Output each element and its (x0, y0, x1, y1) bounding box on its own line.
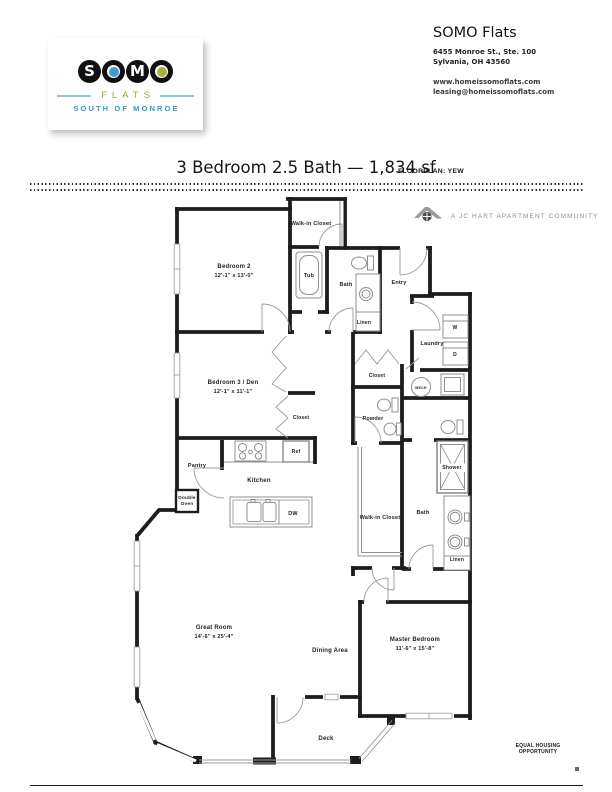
room-label-ref: Ref (292, 449, 301, 455)
room-label-bedroom-2-dims: 12'-1" x 13'-0" (215, 273, 254, 279)
room-label-closet-bedroom-3: Closet (293, 415, 310, 421)
room-label-entry: Entry (391, 280, 407, 286)
room-label-kitchen: Kitchen (247, 478, 271, 484)
room-label-dining-area: Dining Area (312, 648, 348, 654)
room-label-dryer: D (453, 352, 457, 358)
room-label-bedroom-3-dims: 12'-1" x 11'-1" (214, 389, 253, 395)
room-label-powder: Powder (362, 416, 384, 422)
room-label-master-bedroom: Master Bedroom (390, 637, 440, 643)
room-label-tub: Tub (304, 273, 315, 279)
room-label-bath-master: Bath (416, 510, 429, 516)
room-label-bedroom-2: Bedroom 2 (217, 264, 251, 270)
footer-rule (30, 785, 583, 786)
room-label-washer: W (453, 325, 458, 331)
sink-kitchen-right (263, 503, 276, 522)
room-label-shower: Shower (442, 465, 461, 471)
toilet-main (352, 257, 367, 269)
room-label-mech: MECH (415, 386, 427, 390)
room-label-laundry: Laundry (420, 341, 444, 347)
room-label-walk-in-closet-2: Walk-in Closet (291, 221, 332, 227)
sink-powder (384, 423, 396, 435)
room-label-great-room-dims: 14'-6" x 25'-4" (195, 634, 234, 640)
room-label-double-oven-line2: Oven (181, 501, 194, 507)
room-label-deck: Deck (318, 736, 334, 742)
sink-kitchen-left (247, 503, 261, 522)
room-label-great-room: Great Room (196, 625, 232, 631)
room-label-linen-master: Linen (450, 557, 464, 563)
room-label-bath-main: Bath (339, 282, 352, 288)
room-label-closet-hall: Closet (369, 373, 386, 379)
room-label-dw: DW (288, 511, 298, 517)
equal-housing-text: EQUAL HOUSING OPPORTUNITY (498, 743, 578, 755)
toilet-powder (378, 399, 391, 411)
railings (199, 721, 395, 764)
fixtures (224, 201, 470, 570)
toilet-master (441, 421, 455, 434)
room-label-linen-main: Linen (357, 320, 371, 326)
room-label-walk-in-closet-master: Walk-in Closet (360, 515, 401, 521)
room-label-double-oven-line1: Double (178, 495, 196, 501)
room-label-pantry: Pantry (188, 463, 207, 469)
room-label-master-bedroom-dims: 11'-6" x 15'-8" (396, 646, 435, 652)
room-label-bedroom-3: Bedroom 3 / Den (208, 380, 259, 386)
floorplan-drawing: Walk-in ClosetBedroom 212'-1" x 13'-0"Tu… (0, 0, 612, 792)
equal-housing-logo-icon (575, 767, 579, 771)
room-labels: Walk-in ClosetBedroom 212'-1" x 13'-0"Tu… (178, 221, 464, 742)
